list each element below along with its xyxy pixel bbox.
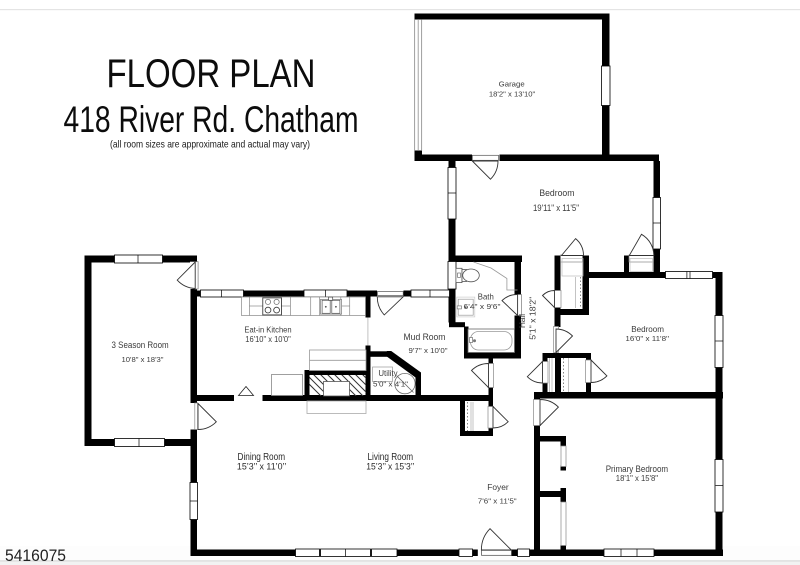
svg-text:15’3’’ x 11’0’’: 15’3’’ x 11’0’’: [237, 460, 286, 471]
svg-text:7'6" x 11'5": 7'6" x 11'5": [478, 496, 517, 505]
svg-text:Foyer: Foyer: [487, 482, 509, 492]
svg-text:6'4" x 9'6": 6'4" x 9'6": [464, 302, 502, 311]
svg-text:Bedroom: Bedroom: [631, 324, 664, 334]
svg-text:Utility: Utility: [378, 369, 398, 378]
svg-text:9'7'' x 10'0": 9'7'' x 10'0": [409, 346, 448, 355]
svg-text:Bath: Bath: [478, 292, 494, 302]
svg-text:418 River Rd. Chatham: 418 River Rd. Chatham: [64, 99, 359, 140]
svg-text:5416075: 5416075: [5, 546, 66, 565]
svg-text:16'10" x 10'0": 16'10" x 10'0": [245, 335, 291, 344]
svg-text:Hall: Hall: [518, 314, 527, 328]
svg-text:18'2" x 13'10": 18'2" x 13'10": [489, 90, 536, 99]
svg-text:Bedroom: Bedroom: [539, 188, 574, 198]
svg-text:Primary Bedroom: Primary Bedroom: [606, 464, 669, 474]
svg-text:Garage: Garage: [499, 80, 525, 89]
svg-text:FLOOR PLAN: FLOOR PLAN: [107, 52, 316, 96]
svg-text:Eat-in Kitchen: Eat-in Kitchen: [244, 326, 291, 335]
svg-text:16'0" x 11'8'': 16'0" x 11'8'': [625, 334, 669, 343]
svg-text:18'1" x 15'8": 18'1" x 15'8": [616, 474, 658, 483]
svg-text:5'0" x 4'1": 5'0" x 4'1": [373, 380, 408, 389]
svg-text:5'1" x 18'2": 5'1" x 18'2": [529, 297, 538, 340]
svg-text:3 Season Room: 3 Season Room: [112, 340, 169, 350]
svg-text:Mud Room: Mud Room: [404, 332, 446, 342]
svg-text:19'11" x 11'5": 19'11" x 11'5": [533, 203, 579, 213]
svg-text:10'8" x 18'3": 10'8" x 18'3": [121, 355, 163, 364]
svg-text:15’3’’ x 15’3’’: 15’3’’ x 15’3’’: [366, 460, 414, 471]
svg-text:(all room sizes are approximat: (all room sizes are approximate and actu…: [110, 139, 310, 151]
